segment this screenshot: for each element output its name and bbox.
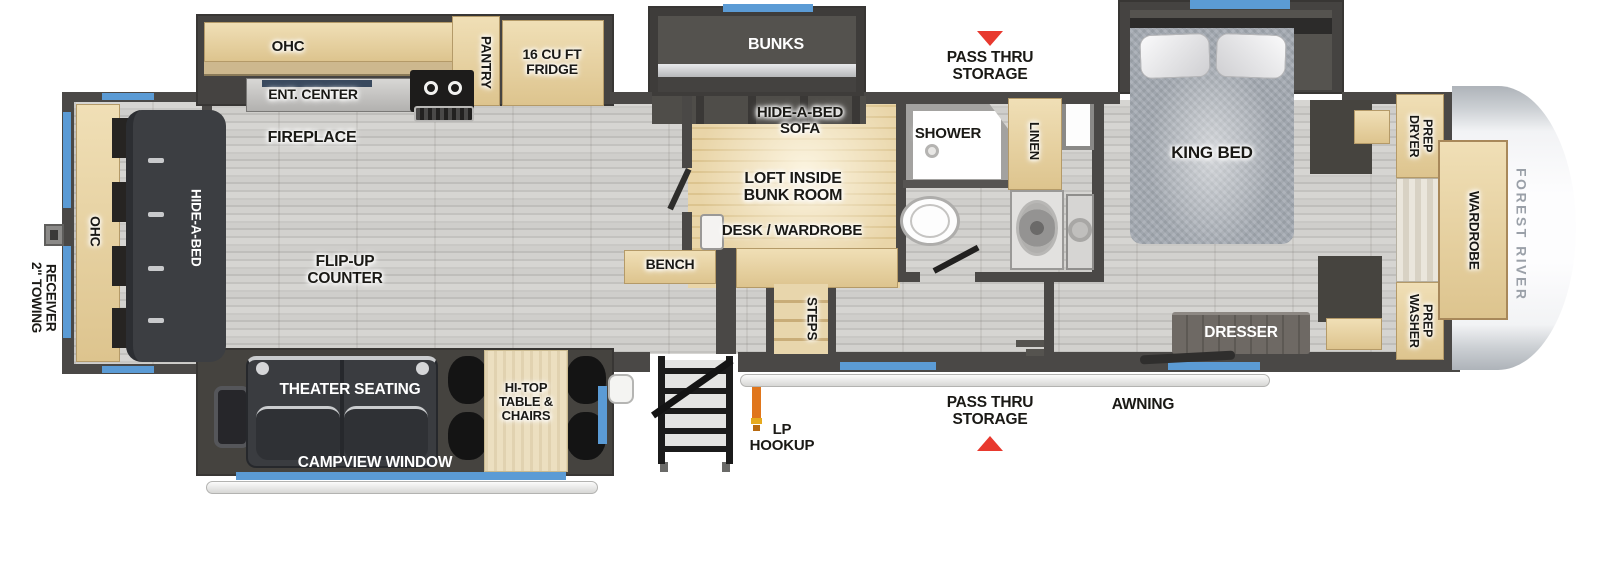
label-bench: BENCH [622,256,718,274]
nightstand-bottom [1318,256,1382,322]
sofa-cushion-gap [148,318,164,323]
sofa-cushion-gap [148,266,164,271]
bedroom-partition-wall [1044,280,1054,364]
shower-lower-wall [903,180,1008,188]
nightstand-bottom-front [1326,318,1382,350]
bedside-platform [1396,178,1444,282]
entry-step-tread [660,446,730,452]
towing-hitch-socket [50,230,58,240]
label-desk-wardrobe: DESK / WARDROBE [692,221,892,241]
shower-stall [906,104,1008,186]
bedroom-step [1026,349,1044,356]
bunks-window [723,4,813,12]
label-linen: LINEN [1022,106,1046,176]
label-dresser: DRESSER [1181,323,1301,343]
rear-window-left-2 [63,246,71,338]
bathroom-wall-bottom-right [975,272,1092,282]
bunk-mattress-band [658,64,856,77]
kitchen-ohc-cabinet [204,22,454,62]
pass-thru-arrow-down-icon [977,31,1003,46]
label-dryer-prep: DRYER PREP [1402,96,1438,176]
label-flip-up-counter: FLIP-UP COUNTER [275,252,415,290]
sofa-cushion-gap [148,212,164,217]
steps-wall-left [766,284,774,354]
label-hide-a-bed-sofa: HIDE-A-BED SOFA [720,104,880,138]
rear-hide-a-bed-sofa [126,110,226,362]
floorplan: 2" TOWING RECEIVER OHC HIDE-A-BED FIREPL… [0,0,1600,573]
cupholder [256,362,269,375]
pass-thru-notch [1062,104,1094,150]
rear-window-top [102,93,154,100]
slide-window-side [598,386,607,444]
lp-hookup-pipe [752,384,761,420]
label-awning: AWNING [1093,396,1193,414]
label-campview-window: CAMPVIEW WINDOW [295,452,455,474]
label-lp-hookup: LP HOOKUP [722,420,842,456]
label-fireplace: FIREPLACE [242,128,382,148]
label-pass-thru-top: PASS THRU STORAGE [930,50,1050,84]
pillow-left [1139,33,1210,79]
label-king-bed: KING BED [1142,142,1282,164]
label-hi-top-table: HI-TOP TABLE & CHAIRS [486,378,566,426]
awning-rail-left [206,481,598,494]
shower-drain [925,144,939,158]
label-wardrobe: WARDROBE [1460,160,1486,300]
vanity-sink [1016,200,1058,256]
bottom-window-1 [840,362,936,370]
cupholder [416,362,429,375]
nightstand-top-front [1354,110,1390,144]
washer-door [1068,218,1092,242]
awning-rail-main [740,374,1270,387]
label-loft-inside-bunk-room: LOFT INSIDE BUNK ROOM [703,168,883,206]
bedroom-step [1016,340,1044,347]
king-window [1190,0,1290,9]
desk-surface [736,248,898,288]
label-bunks: BUNKS [716,34,836,56]
label-pantry: PANTRY [472,24,498,100]
bunk-room-wall-upper [682,96,692,168]
entry-handle [608,374,634,404]
label-washer-prep: WASHER PREP [1402,282,1438,360]
stove-knob [448,81,462,95]
bottom-window-2 [1168,362,1260,370]
label-ent-center: ENT. CENTER [263,86,363,104]
label-rear-ohc: OHC [82,198,108,264]
top-wall-mid [610,92,652,104]
bathroom-wall-bottom-left [896,272,920,282]
label-theater-seating: THEATER SEATING [270,380,430,400]
label-shower: SHOWER [908,124,988,144]
stove-grill [414,106,474,122]
label-pass-thru-bottom: PASS THRU STORAGE [930,394,1050,430]
sofa-cushion-gap [148,158,164,163]
label-towing-recei­ver: 2" TOWING RECEIVER [22,248,64,348]
bunk-lower [658,77,856,92]
pass-thru-arrow-up-icon [977,436,1003,451]
label-rear-hide-a-bed: HIDE-A-BED [182,160,208,296]
rear-window-bottom [102,366,154,373]
label-kitchen-ohc: OHC [258,34,318,60]
entry-step-tread [660,408,730,414]
bunk-room-wall-lower [682,212,692,254]
tv [214,386,250,448]
stove-knob [424,81,438,95]
entry-wall [716,248,736,354]
dining-chair [448,356,488,404]
rear-window-left-1 [63,112,71,208]
brand-logo: FOREST RIVER [1506,138,1536,332]
bottom-wall-entry-left [614,352,650,372]
entry-step-tread [660,428,730,434]
toilet-seat [910,204,950,238]
steps-wall-right [828,284,836,354]
pillow-right [1215,33,1286,79]
label-steps: STEPS [799,289,823,349]
label-fridge: 16 CU FT FRIDGE [512,44,592,80]
